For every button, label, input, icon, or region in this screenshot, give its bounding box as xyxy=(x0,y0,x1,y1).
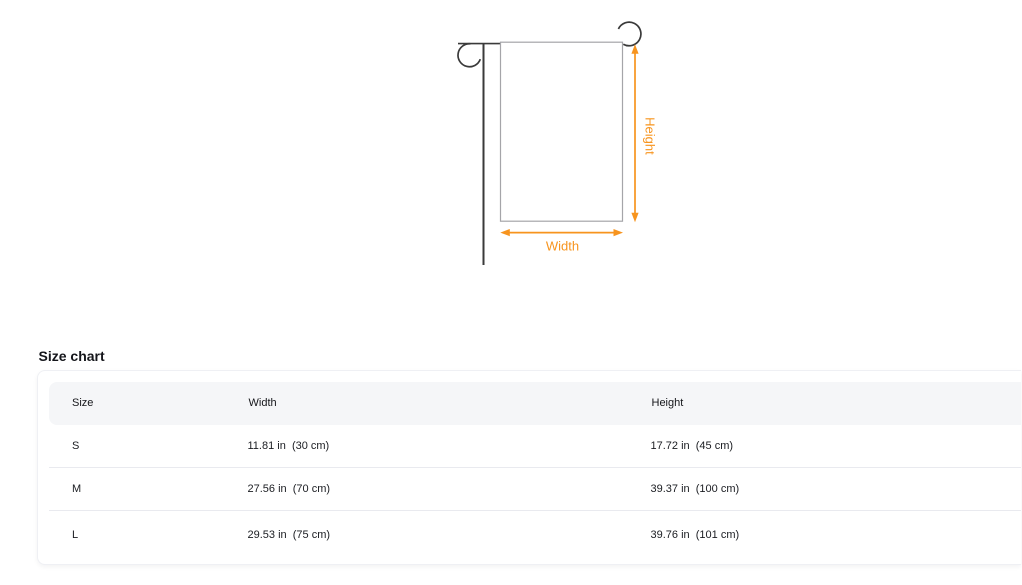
svg-text:Width: Width xyxy=(546,239,579,254)
svg-text:Height: Height xyxy=(643,117,658,155)
